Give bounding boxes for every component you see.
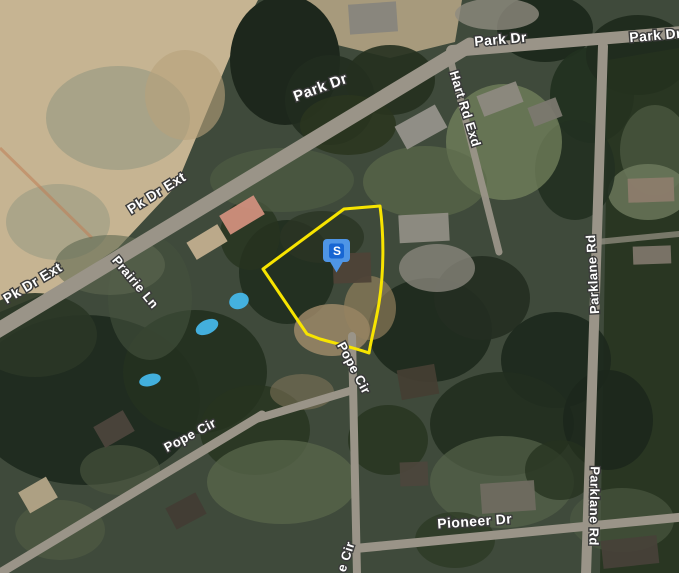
terrain-patch	[207, 440, 357, 524]
terrain-patch	[145, 50, 225, 140]
house-roof	[348, 1, 398, 34]
road-label-parklane-rd: Parklane Rd	[586, 466, 602, 546]
house-roof	[398, 213, 449, 244]
map-canvas[interactable]: Park DrPark DrPark DrHart Rd ExdPk Dr Ex…	[0, 0, 679, 573]
terrain-patch	[344, 276, 396, 340]
marker-letter: S	[333, 244, 341, 258]
house-roof	[480, 480, 536, 514]
house-roof	[628, 177, 675, 203]
house-roof	[400, 462, 429, 487]
terrain-patch	[399, 244, 475, 292]
house-roof	[601, 535, 660, 569]
house-roof	[633, 245, 672, 264]
satellite-map-viewport[interactable]: Park DrPark DrPark DrHart Rd ExdPk Dr Ex…	[0, 0, 679, 573]
